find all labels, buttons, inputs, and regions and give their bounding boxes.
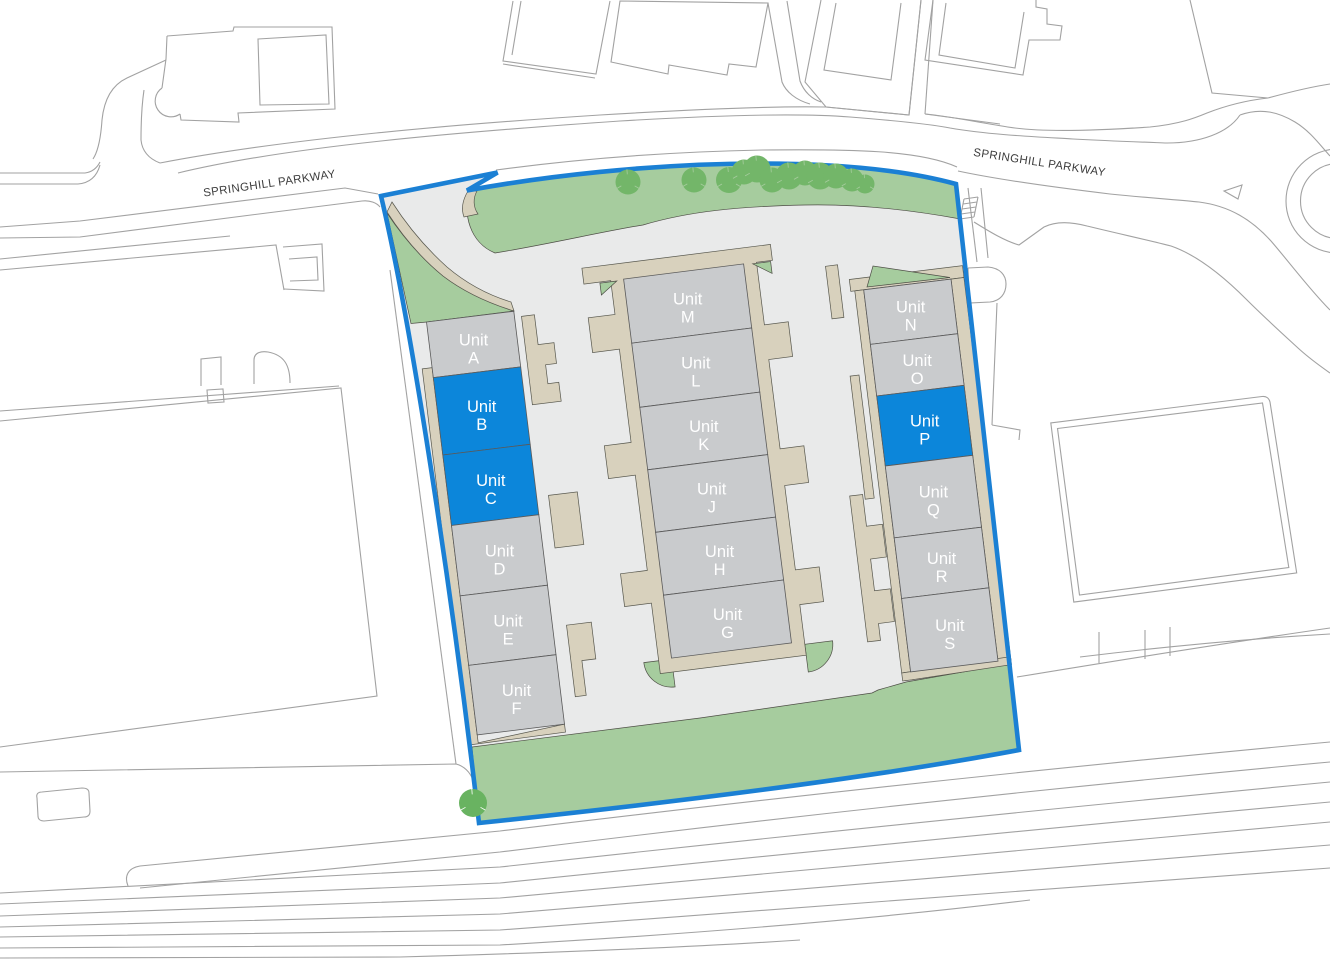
svg-text:Unit: Unit — [705, 543, 735, 561]
svg-text:Unit: Unit — [697, 481, 727, 499]
svg-text:S: S — [944, 635, 955, 653]
svg-text:A: A — [468, 349, 479, 367]
svg-text:Unit: Unit — [927, 550, 957, 568]
svg-text:Unit: Unit — [459, 331, 489, 349]
svg-text:Unit: Unit — [476, 472, 506, 490]
svg-text:G: G — [721, 624, 734, 642]
svg-text:Unit: Unit — [673, 291, 703, 309]
svg-text:D: D — [494, 560, 506, 578]
svg-text:Unit: Unit — [467, 398, 497, 416]
svg-text:L: L — [691, 373, 700, 391]
svg-text:J: J — [708, 499, 716, 517]
svg-text:B: B — [476, 416, 487, 434]
svg-text:O: O — [911, 370, 924, 388]
svg-text:N: N — [905, 317, 917, 335]
svg-text:H: H — [714, 561, 726, 579]
svg-text:Unit: Unit — [713, 606, 743, 624]
svg-text:Unit: Unit — [903, 352, 933, 370]
svg-text:Unit: Unit — [502, 682, 532, 700]
svg-text:C: C — [485, 490, 497, 508]
svg-text:Unit: Unit — [919, 484, 949, 502]
svg-text:Unit: Unit — [681, 355, 711, 373]
svg-text:M: M — [681, 309, 695, 327]
svg-text:F: F — [512, 700, 522, 718]
svg-text:Unit: Unit — [485, 542, 515, 560]
svg-text:Unit: Unit — [493, 612, 523, 630]
svg-text:Unit: Unit — [689, 418, 719, 436]
svg-text:E: E — [503, 630, 514, 648]
svg-text:Unit: Unit — [896, 299, 926, 317]
svg-text:P: P — [919, 431, 930, 449]
svg-text:Q: Q — [927, 502, 940, 520]
svg-text:R: R — [936, 568, 948, 586]
svg-text:Unit: Unit — [935, 617, 965, 635]
svg-text:Unit: Unit — [910, 413, 940, 431]
svg-text:K: K — [698, 436, 709, 454]
